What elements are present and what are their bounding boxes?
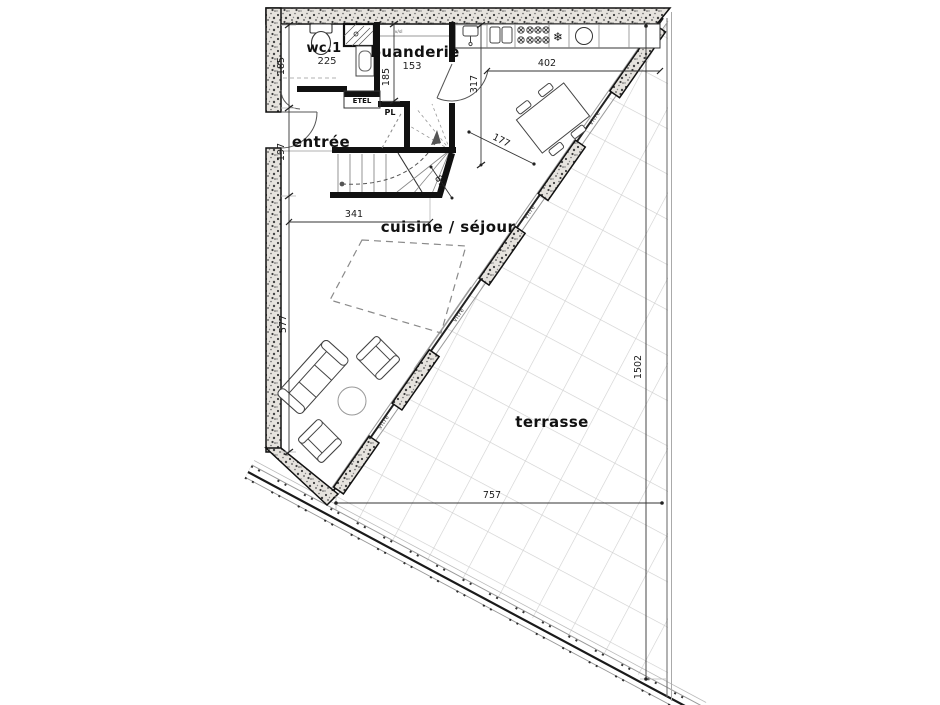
room-area-wc: 225 <box>317 56 336 67</box>
closet-label-pl: PL <box>385 108 396 117</box>
wall-pl-right <box>404 101 410 153</box>
floor-plan-page: ❄ <box>0 0 940 705</box>
dim-kitchen-depth: 317 <box>469 75 480 93</box>
wall-left-lower <box>266 148 281 452</box>
dim-buanderie-height: 185 <box>381 68 392 86</box>
room-label-terrasse: terrasse <box>515 413 589 431</box>
dim-terrasse-width: 757 <box>483 490 501 501</box>
room-label-entree: entrée <box>292 133 350 151</box>
dim-left-door: 197 <box>276 143 287 161</box>
dim-left-lower: 577 <box>278 315 289 333</box>
kitchen-counter: ❄ <box>455 24 660 48</box>
room-label-wc: wc.1 <box>307 41 342 56</box>
wall-top <box>266 8 670 24</box>
wall-wc-bottom <box>297 86 347 92</box>
closet-label-etel: ETEL <box>353 97 372 105</box>
dim-table-clearance: 177 <box>491 132 512 150</box>
armchair-2 <box>297 418 342 463</box>
floor-plan-drawing: ❄ <box>0 0 940 705</box>
wall-stair-bottom <box>330 192 442 198</box>
wall-stair-right <box>449 103 455 153</box>
dashed-overhead-outline <box>330 240 466 333</box>
room-area-buanderie: 153 <box>402 61 421 72</box>
counter-note-label: lv/sl <box>393 29 402 35</box>
room-label-sejour: cuisine / séjour <box>381 218 516 236</box>
stair-direction-arrow <box>431 130 441 145</box>
room-label-buanderie: buanderie <box>370 43 459 61</box>
dim-terrasse-height: 1502 <box>633 355 644 379</box>
dim-kitchen-width: 402 <box>538 58 556 69</box>
coffee-table <box>338 387 366 415</box>
armchair-1 <box>355 335 400 380</box>
wall-stair-top <box>332 147 456 153</box>
dim-left-upper: 185 <box>276 57 287 75</box>
dim-sejour-width: 341 <box>345 209 363 220</box>
fridge-snowflake-icon: ❄ <box>553 30 563 44</box>
buanderie-door-arc <box>437 70 488 101</box>
